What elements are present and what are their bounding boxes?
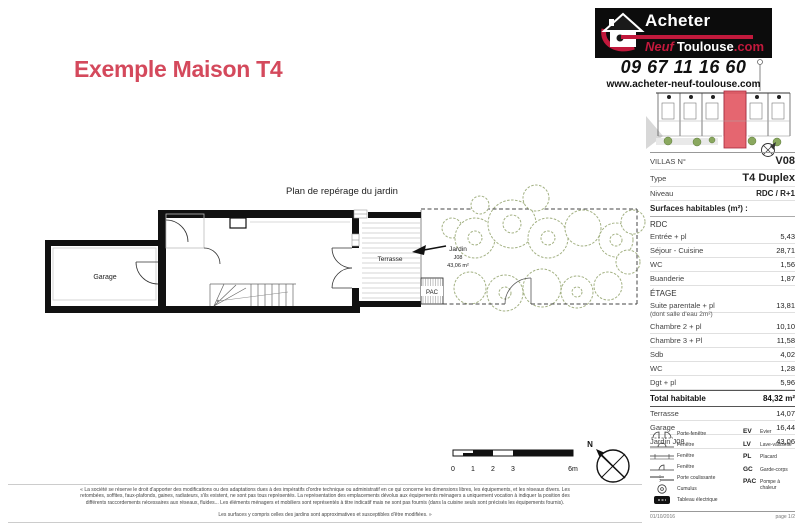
surface-row-note: (dont salle d'eau 2m²) (650, 311, 795, 320)
info-row-villas: VILLAS N° V08 (650, 152, 795, 170)
garden-trees (442, 200, 645, 311)
surface-label: Sdb (650, 350, 663, 359)
surface-label: Entrée + pl (650, 232, 686, 241)
info-row-value: T4 Duplex (742, 172, 795, 184)
legend-item: Porte-fenêtre (650, 428, 738, 439)
surface-value: 1,56 (780, 260, 795, 269)
legend-item-label: Porte coulissante (677, 475, 715, 481)
total-row: Total habitable 84,32 m² (650, 390, 795, 407)
legend-abbr: LV (743, 441, 760, 448)
scale-tick: 3 (511, 466, 515, 473)
brochure-page: Garage Terrasse Jardin J08 43,06 m² PAC … (0, 0, 800, 529)
surface-label: WC (650, 364, 663, 373)
section-title-etage: ÉTAGE (650, 286, 795, 299)
surfaces-title-label: Surfaces habitables (m²) : (650, 204, 748, 213)
total-value: 84,32 m² (763, 394, 795, 403)
annex-value: 14,07 (776, 409, 795, 418)
scale-bar: 0 1 2 3 6m (451, 450, 578, 473)
phone-number: 09 67 11 16 60 (595, 57, 772, 78)
info-row-value: RDC / R+1 (756, 189, 795, 198)
porte-fenetre-icon (650, 429, 677, 439)
legend-item-label: Cumulus (677, 486, 697, 492)
legend-abbreviations-column: EV Evier LV Lave-vaisselle PL Placard GC… (743, 428, 796, 505)
footer-page-number: page 1/2 (776, 514, 795, 520)
info-row-value: V08 (775, 155, 795, 167)
total-label: Total habitable (650, 394, 706, 403)
legend-item: Tableau électrique (650, 494, 738, 505)
scale-tick: 1 (471, 466, 475, 473)
legend-abbr-label: Evier (760, 428, 771, 435)
surface-label: WC (650, 260, 663, 269)
door-arcs (136, 220, 352, 288)
scale-tick: 6m (568, 466, 578, 473)
legend-item: Cumulus (650, 483, 738, 494)
scale-tick: 0 (451, 466, 455, 473)
tableau-electrique-icon (650, 495, 677, 505)
surface-value: 4,02 (780, 350, 795, 359)
terrasse-label: Terrasse (378, 256, 403, 263)
surface-label: Dgt + pl (650, 378, 676, 387)
garage-inner-outline (53, 248, 156, 300)
legend-item-label: Fenêtre (677, 464, 694, 470)
walls (45, 210, 421, 313)
plan-caption: Plan de repérage du jardin (286, 186, 398, 197)
stairs (210, 284, 296, 306)
legend-item-label: Porte-fenêtre (677, 431, 706, 437)
logo-stripe (621, 35, 753, 39)
surface-value: 11,58 (777, 336, 795, 345)
porte-coulissante-icon (650, 473, 677, 483)
surface-label: Buanderie (650, 274, 684, 283)
legend-abbr-label: Garde-corps (760, 466, 788, 473)
legend-item-label: Tableau électrique (677, 497, 718, 503)
surface-label: Chambre 3 + Pl (650, 336, 702, 345)
legend-item: Fenêtre (650, 461, 738, 472)
surface-label: (dont salle d'eau 2m²) (650, 311, 713, 318)
highlighted-unit (724, 91, 746, 148)
house-logo-icon (599, 11, 645, 55)
annex-label: Terrasse (650, 409, 679, 418)
legend-item-label: Fenêtre (677, 442, 694, 448)
disclaimer-line: retombées, soffites, faux-plafonds, gain… (10, 493, 640, 499)
jardin-boundary (421, 209, 637, 304)
section-title-label: ÉTAGE (650, 289, 677, 298)
info-row-type: Type T4 Duplex (650, 170, 795, 187)
window-top (354, 210, 367, 218)
pac-label: PAC (426, 290, 439, 296)
surface-value: 1,28 (780, 364, 795, 373)
plan-labels: Garage Terrasse Jardin J08 43,06 m² PAC (93, 246, 469, 296)
legend-item: Fenêtre (650, 450, 738, 461)
surface-row: Séjour - Cuisine 28,71 (650, 244, 795, 258)
legend-abbr-item: PAC Pompe à chaleur (743, 478, 796, 491)
pac-unit (421, 278, 443, 304)
legend-abbr: PL (743, 453, 760, 460)
legend-item-label: Fenêtre (677, 453, 694, 459)
garage-label: Garage (93, 274, 116, 281)
surface-row: WC 1,56 (650, 258, 795, 272)
surface-row: Buanderie 1,87 (650, 272, 795, 286)
section-title-rdc: RDC (650, 217, 795, 230)
website-link[interactable]: www.acheter-neuf-toulouse.com (595, 79, 772, 90)
logo-neuf: Neuf (645, 39, 674, 54)
surface-row: Dgt + pl 5,96 (650, 376, 795, 390)
cumulus-icon (650, 484, 677, 494)
legal-disclaimer: « La société se réserve le droit d'appor… (8, 484, 642, 523)
surface-label: Suite parentale + pl (650, 301, 715, 310)
terrasse-deck (362, 223, 420, 298)
legend-abbr: EV (743, 428, 760, 435)
logo-toulouse: Toulouse (677, 39, 734, 54)
logo-dotcom: .com (734, 39, 764, 54)
fenetre-icon (650, 440, 677, 450)
surface-value: 28,71 (776, 246, 795, 255)
surface-value: 10,10 (776, 322, 795, 331)
villa-info-table: VILLAS N° V08 Type T4 Duplex Niveau RDC … (650, 152, 795, 449)
logo-line1: Acheter (645, 11, 710, 31)
terrasse-arrow (412, 245, 446, 255)
garden-gate-arc (505, 278, 531, 304)
page-title: Exemple Maison T4 (74, 56, 282, 83)
surface-row: Chambre 3 + Pl 11,58 (650, 334, 795, 348)
floor-plan (45, 185, 645, 313)
legend-item: Porte coulissante (650, 472, 738, 483)
scale-tick: 2 (491, 466, 495, 473)
legend-abbr: GC (743, 466, 760, 473)
plan-legend: Porte-fenêtre Fenêtre Fenêtre Fenêtre (650, 428, 796, 505)
info-row-label: Niveau (650, 189, 673, 198)
surface-row: Chambre 2 + pl 10,10 (650, 320, 795, 334)
legend-abbr-label: Pompe à chaleur (760, 478, 796, 491)
logo-line2: NeufToulouse.com (645, 39, 764, 54)
jardin-id-label: J08 (454, 255, 463, 261)
legend-symbols-column: Porte-fenêtre Fenêtre Fenêtre Fenêtre (650, 428, 738, 505)
surface-row: Entrée + pl 5,43 (650, 230, 795, 244)
legend-abbr-label: Lave-vaisselle (760, 441, 792, 448)
window-right (352, 234, 359, 246)
info-row-label: Type (650, 174, 666, 183)
surfaces-title: Surfaces habitables (m²) : (650, 201, 795, 217)
surface-row: Sdb 4,02 (650, 348, 795, 362)
north-compass-icon: N (587, 440, 629, 482)
legend-abbr-item: EV Evier (743, 428, 796, 441)
legend-item: Fenêtre (650, 439, 738, 450)
panel-footer: 01/10/2016 page 1/2 (650, 511, 795, 520)
disclaimer-line: différents raccordements nécessaires aux… (10, 500, 640, 506)
fenetre-icon (650, 451, 677, 461)
legend-abbr-label: Placard (760, 453, 777, 460)
surface-value: 13,81 (776, 301, 795, 310)
legend-abbr-item: LV Lave-vaisselle (743, 441, 796, 454)
surface-label: Chambre 2 + pl (650, 322, 702, 331)
section-title-label: RDC (650, 220, 667, 229)
jardin-area-label: 43,06 m² (447, 263, 469, 269)
surface-value: 5,96 (780, 378, 795, 387)
closet-outline (166, 214, 204, 248)
legend-abbr-item: GC Garde-corps (743, 466, 796, 479)
surface-row: WC 1,28 (650, 362, 795, 376)
chimney-notch (230, 218, 246, 228)
info-row-niveau: Niveau RDC / R+1 (650, 187, 795, 201)
north-label: N (587, 440, 593, 449)
brand-logo: Acheter NeufToulouse.com (595, 8, 772, 58)
surface-label: Séjour - Cuisine (650, 246, 703, 255)
jardin-label: Jardin (449, 246, 467, 253)
footer-date: 01/10/2016 (650, 514, 675, 520)
fenetre-icon (650, 462, 677, 472)
info-row-label: VILLAS N° (650, 157, 686, 166)
legend-abbr: PAC (743, 478, 760, 485)
disclaimer-line: Les surfaces y compris celles des jardin… (10, 512, 640, 518)
legend-abbr-item: PL Placard (743, 453, 796, 466)
surface-value: 1,87 (780, 274, 795, 283)
surface-value: 5,43 (780, 232, 795, 241)
annex-row: Terrasse 14,07 (650, 407, 795, 421)
